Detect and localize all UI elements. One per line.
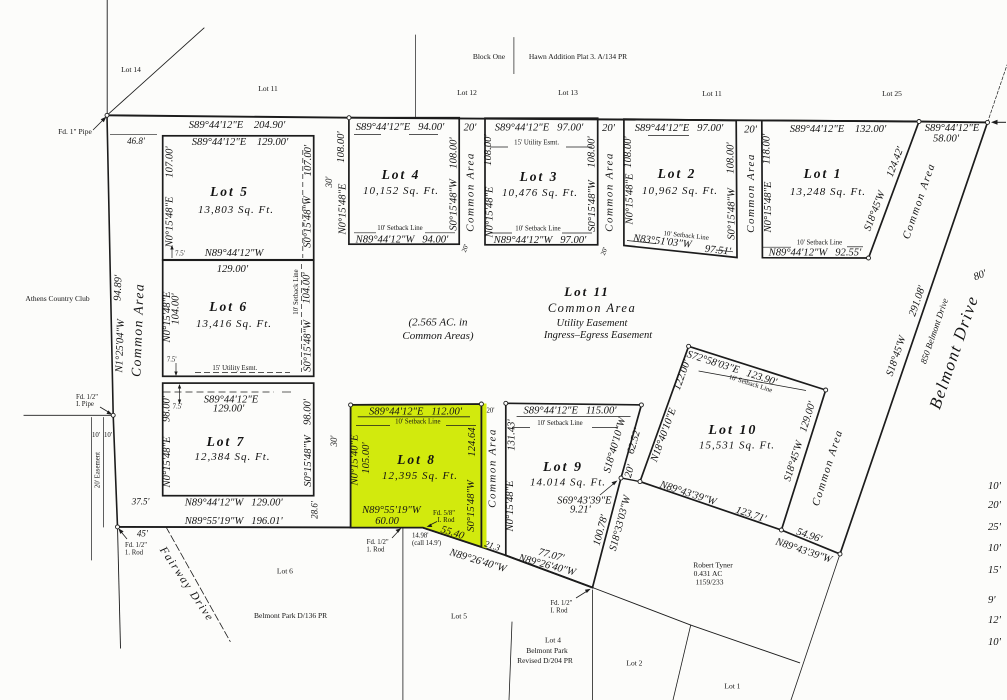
svg-text:10' Setback Line: 10' Setback Line (395, 419, 440, 426)
svg-text:105.00': 105.00' (361, 442, 372, 474)
svg-text:S89°44'12"E: S89°44'12"E (925, 123, 980, 134)
svg-text:Lot 11: Lot 11 (258, 84, 278, 93)
svg-text:46.8': 46.8' (127, 136, 146, 146)
svg-text:Lot 4: Lot 4 (381, 167, 421, 182)
svg-text:Lot 9: Lot 9 (542, 460, 583, 475)
svg-text:N0°15'48"E: N0°15'48"E (165, 196, 176, 249)
svg-text:N89°44'12"W: N89°44'12"W (204, 248, 265, 259)
svg-text:(2.565 AC. in: (2.565 AC. in (408, 317, 468, 329)
svg-text:20': 20' (988, 500, 1002, 511)
svg-text:S89°44'12"E 97.00': S89°44'12"E 97.00' (635, 123, 724, 134)
svg-text:N0°15'48"E: N0°15'48"E (338, 183, 349, 236)
svg-text:N89°55'19"W 196.01': N89°55'19"W 196.01' (184, 516, 284, 527)
svg-text:25': 25' (988, 522, 1002, 533)
svg-text:Lot 1: Lot 1 (724, 682, 740, 691)
svg-text:N89°55'19"W: N89°55'19"W (361, 505, 422, 516)
svg-text:7.5': 7.5' (173, 404, 183, 411)
svg-text:Common Area: Common Area (604, 152, 616, 232)
svg-text:N0°15'48"E: N0°15'48"E (763, 181, 774, 234)
svg-text:10': 10' (988, 637, 1002, 648)
svg-text:Hawn Addition Plat 3. A/134 P: Hawn Addition Plat 3. A/134 PR (529, 52, 627, 61)
svg-text:N0°15'48"E: N0°15'48"E (485, 186, 496, 239)
svg-text:S0°15'48"W: S0°15'48"W (727, 187, 738, 240)
svg-text:Fd. 1/2": Fd. 1/2" (125, 542, 147, 549)
svg-text:S89°44'12"E 97.00': S89°44'12"E 97.00' (495, 123, 584, 134)
svg-text:Lot 14: Lot 14 (121, 65, 141, 74)
svg-text:N0°15'48"E: N0°15'48"E (505, 480, 516, 533)
svg-text:Lot 7: Lot 7 (206, 434, 246, 449)
svg-text:I. Rod: I. Rod (551, 608, 569, 615)
svg-text:10' Setback Line: 10' Setback Line (537, 420, 582, 427)
svg-text:Lot 12: Lot 12 (457, 88, 477, 97)
svg-text:S0°15'48"W: S0°15'48"W (449, 178, 460, 231)
svg-text:1. Rod: 1. Rod (366, 547, 385, 554)
svg-text:107.00': 107.00' (303, 144, 314, 176)
svg-text:108.00': 108.00' (623, 136, 634, 168)
svg-text:Fd. 1/2": Fd. 1/2" (367, 539, 389, 546)
svg-text:Common Area: Common Area (487, 428, 499, 508)
svg-text:S0°15'48"W: S0°15'48"W (303, 434, 314, 487)
svg-text:10' Setback Line: 10' Setback Line (377, 225, 422, 232)
svg-text:108.00': 108.00' (483, 134, 494, 166)
svg-text:S89°44'12"E 115.00': S89°44'12"E 115.00' (523, 406, 617, 417)
svg-text:Lot 5: Lot 5 (209, 184, 249, 199)
svg-text:10,476 Sq. Ft.: 10,476 Sq. Ft. (502, 187, 578, 199)
svg-text:1159/233: 1159/233 (695, 578, 723, 587)
svg-text:Fd. 1/2": Fd. 1/2" (550, 600, 572, 607)
svg-text:Common Area: Common Area (548, 301, 636, 315)
svg-text:30': 30' (324, 175, 334, 188)
svg-text:13,803 Sq. Ft.: 13,803 Sq. Ft. (198, 204, 274, 216)
svg-text:20': 20' (486, 408, 494, 415)
svg-text:58.00': 58.00' (933, 134, 960, 145)
svg-text:10,962 Sq. Ft.: 10,962 Sq. Ft. (642, 185, 718, 197)
svg-text:12': 12' (988, 615, 1002, 626)
svg-text:Lot 11: Lot 11 (702, 89, 722, 98)
svg-text:S89°44'12"E 204.90': S89°44'12"E 204.90' (189, 120, 286, 131)
svg-text:10': 10' (92, 432, 100, 439)
svg-text:S89°44'12"E 129.00': S89°44'12"E 129.00' (192, 137, 289, 148)
svg-text:45': 45' (137, 529, 149, 539)
svg-text:104.00': 104.00' (302, 272, 313, 304)
svg-text:12,384 Sq. Ft.: 12,384 Sq. Ft. (194, 451, 270, 463)
svg-text:N89°44'12"W 129.00': N89°44'12"W 129.00' (184, 498, 284, 509)
svg-text:N89°44'12"W 97.00': N89°44'12"W 97.00' (493, 235, 587, 246)
svg-text:129.00': 129.00' (217, 264, 249, 275)
svg-text:13,416 Sq. Ft.: 13,416 Sq. Ft. (196, 318, 272, 330)
svg-text:15' Utility Esmt.: 15' Utility Esmt. (212, 365, 257, 372)
svg-text:30': 30' (329, 434, 339, 447)
svg-text:10' Setback Line: 10' Setback Line (515, 226, 560, 233)
svg-text:98.00': 98.00' (162, 395, 173, 422)
svg-text:N0°15'48"E: N0°15'48"E (162, 436, 173, 489)
svg-text:9.21': 9.21' (570, 505, 592, 516)
svg-text:Lot 8: Lot 8 (396, 452, 436, 467)
svg-text:Lot 3: Lot 3 (519, 169, 559, 184)
svg-text:N89°44'12"W 92.55': N89°44'12"W 92.55' (768, 248, 862, 259)
svg-text:S0°15'48"W: S0°15'48"W (587, 179, 598, 232)
svg-text:9': 9' (988, 595, 996, 606)
svg-text:Common Area: Common Area (745, 153, 757, 233)
svg-text:Lot 25: Lot 25 (882, 89, 902, 98)
svg-text:107.00': 107.00' (165, 146, 176, 178)
svg-text:12,395 Sq. Ft.: 12,395 Sq. Ft. (382, 470, 458, 482)
svg-text:S89°44'12"E 112.00': S89°44'12"E 112.00' (369, 407, 463, 418)
svg-text:Common Areas): Common Areas) (402, 330, 474, 342)
svg-text:20' Easement: 20' Easement (95, 452, 102, 488)
svg-text:129.00': 129.00' (213, 404, 245, 415)
svg-text:94.89': 94.89' (113, 274, 125, 301)
svg-text:Belmont Park: Belmont Park (526, 646, 568, 655)
svg-text:10' Setback Line: 10' Setback Line (797, 240, 842, 247)
svg-text:60.00: 60.00 (375, 516, 399, 527)
svg-text:14.014 Sq. Ft.: 14.014 Sq. Ft. (530, 477, 606, 489)
svg-text:Lot 10: Lot 10 (707, 423, 757, 438)
svg-text:Athens Country Club: Athens Country Club (25, 294, 89, 303)
svg-text:20': 20' (602, 123, 616, 134)
svg-text:Lot 6: Lot 6 (208, 299, 248, 314)
svg-text:104.00': 104.00' (171, 293, 182, 325)
svg-text:37.5': 37.5' (131, 497, 151, 507)
svg-text:(call 14.9'): (call 14.9') (412, 540, 441, 547)
svg-text:Lot 11: Lot 11 (563, 284, 610, 299)
svg-text:124.64: 124.64 (467, 427, 478, 457)
svg-text:Lot 2: Lot 2 (626, 659, 642, 668)
svg-text:10' Setback Line: 10' Setback Line (293, 269, 300, 314)
svg-text:S0°15'48"W: S0°15'48"W (303, 195, 314, 248)
svg-text:Lot 1: Lot 1 (803, 166, 843, 181)
svg-text:Lot 2: Lot 2 (657, 166, 697, 181)
svg-text:98.00': 98.00' (302, 398, 313, 425)
svg-text:I. Rod: I. Rod (438, 517, 456, 524)
svg-text:Lot 6: Lot 6 (277, 567, 293, 576)
svg-text:S0°15'48"W: S0°15'48"W (303, 319, 314, 372)
svg-text:108.00': 108.00' (726, 142, 737, 174)
svg-text:14.98': 14.98' (412, 533, 429, 540)
svg-text:N0°15'48"E: N0°15'48"E (625, 173, 636, 226)
svg-text:108.00': 108.00' (449, 137, 460, 169)
svg-text:7.5': 7.5' (175, 251, 185, 258)
svg-text:Common Area: Common Area (465, 152, 477, 232)
svg-text:131.43': 131.43' (507, 419, 518, 451)
svg-text:Utility Easement: Utility Easement (557, 318, 629, 329)
svg-text:Lot 4: Lot 4 (545, 636, 561, 645)
svg-text:13,248 Sq. Ft.: 13,248 Sq. Ft. (790, 186, 866, 198)
svg-text:S0°15'48"W: S0°15'48"W (466, 479, 477, 532)
svg-text:118.00': 118.00' (762, 133, 773, 164)
svg-text:Fd. 1" Pipe: Fd. 1" Pipe (58, 127, 92, 136)
svg-text:Block One: Block One (473, 52, 506, 61)
svg-text:N1°25'04"W: N1°25'04"W (114, 318, 127, 374)
svg-text:10': 10' (988, 543, 1002, 554)
svg-text:28.6': 28.6' (310, 500, 320, 519)
svg-text:20': 20' (464, 123, 478, 134)
svg-text:Fd. 5/8": Fd. 5/8" (433, 510, 455, 517)
svg-text:10,152 Sq. Ft.: 10,152 Sq. Ft. (363, 185, 439, 197)
svg-text:108.00': 108.00' (587, 136, 598, 168)
svg-text:108.00': 108.00' (336, 131, 347, 163)
svg-text:S89°44'12"E 132.00': S89°44'12"E 132.00' (790, 124, 887, 135)
svg-text:N89°44'12"W 94.00': N89°44'12"W 94.00' (355, 235, 449, 246)
svg-text:15' Utility Esmt.: 15' Utility Esmt. (514, 140, 559, 147)
svg-text:I. Pipe: I. Pipe (76, 401, 94, 408)
svg-text:Fd. 1/2": Fd. 1/2" (76, 394, 98, 401)
svg-text:1. Rod: 1. Rod (125, 550, 144, 557)
svg-text:7.5': 7.5' (167, 357, 177, 364)
svg-text:Lot 13: Lot 13 (558, 88, 578, 97)
svg-text:N0°15'40"E: N0°15'40"E (349, 434, 360, 487)
svg-text:S89°44'12"E 94.00': S89°44'12"E 94.00' (356, 122, 445, 133)
svg-text:10': 10' (104, 432, 112, 439)
svg-text:15': 15' (988, 565, 1002, 576)
svg-text:10': 10' (988, 481, 1002, 492)
svg-text:Ingress–Egress Easement: Ingress–Egress Easement (543, 330, 653, 341)
svg-text:20': 20' (744, 125, 758, 136)
svg-text:Lot 5: Lot 5 (451, 612, 467, 621)
svg-text:Revised D/204 PR: Revised D/204 PR (517, 656, 573, 665)
svg-text:Belmont Park D/136 PR: Belmont Park D/136 PR (254, 611, 327, 620)
svg-text:15,531 Sq. Ft.: 15,531 Sq. Ft. (699, 440, 775, 452)
